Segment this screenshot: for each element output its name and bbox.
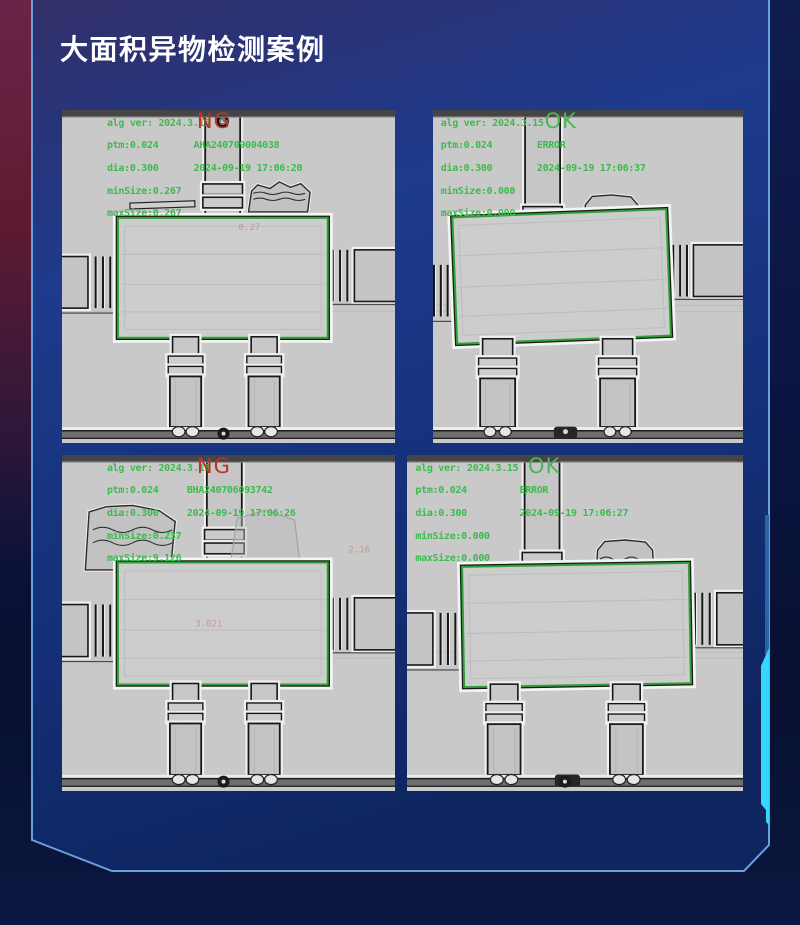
overlay-error: ERROR [520, 485, 549, 496]
overlay-max-size: maxSize:9.126 [107, 553, 181, 564]
overlay-min-size: minSize:0.000 [441, 186, 515, 197]
overlay: alg ver: 2024.3.15 ptm:0.024 dia:0.300 m… [62, 455, 395, 791]
overlay-dia: dia:0.300 [441, 163, 493, 174]
overlay-min-size: minSize:0.237 [107, 531, 181, 542]
overlay-alg-ver: alg ver: 2024.3.15 [415, 463, 518, 474]
status-badge: OK [528, 456, 560, 477]
overlay-ptm: ptm:0.024 [107, 485, 159, 496]
xray-case-top-left: 0.27 alg ver: 2024.3.15 ptm:0.024 dia:0.… [62, 110, 395, 443]
overlay: alg ver: 2024.3.15 ptm:0.024 dia:0.300 m… [433, 110, 743, 443]
overlay-datetime: 2024-09-19 17:06:27 [520, 508, 629, 519]
overlay-max-size: maxSize:0.000 [415, 553, 489, 564]
overlay-alg-ver: alg ver: 2024.3.15 [441, 118, 544, 129]
overlay-datetime: 2024-09-19 17:06:37 [537, 163, 646, 174]
overlay-ptm: ptm:0.024 [415, 485, 467, 496]
right-edge-accent-dim [765, 515, 769, 655]
overlay-max-size: maxSize:0.267 [107, 208, 181, 219]
overlay-serial: AHA240709004038 [194, 140, 280, 151]
xray-case-bottom-left: 3.0212.16 alg ver: 2024.3.15 ptm:0.024 d… [62, 455, 395, 791]
status-badge: OK [545, 111, 577, 132]
overlay-ptm: ptm:0.024 [107, 140, 159, 151]
page-title: 大面积异物检测案例 [60, 28, 326, 68]
overlay-min-size: minSize:0.267 [107, 186, 181, 197]
overlay-ptm: ptm:0.024 [441, 140, 493, 151]
right-edge-accent-cyan [761, 648, 769, 825]
overlay: alg ver: 2024.3.15 ptm:0.024 dia:0.300 m… [62, 110, 395, 443]
overlay-serial: BHA240706093742 [187, 485, 273, 496]
overlay-datetime: 2024-09-19 17:06:26 [187, 508, 296, 519]
status-badge: NG [197, 111, 231, 132]
overlay-dia: dia:0.300 [107, 163, 159, 174]
slide: 大面积异物检测案例 0.27 alg ver: 2024.3.15 ptm:0.… [0, 0, 800, 925]
overlay: alg ver: 2024.3.15 ptm:0.024 dia:0.300 m… [407, 455, 743, 791]
xray-case-top-right: alg ver: 2024.3.15 ptm:0.024 dia:0.300 m… [433, 110, 743, 443]
overlay-dia: dia:0.300 [415, 508, 467, 519]
xray-case-bottom-right: alg ver: 2024.3.15 ptm:0.024 dia:0.300 m… [407, 455, 743, 791]
overlay-dia: dia:0.300 [107, 508, 159, 519]
overlay-alg-ver: alg ver: 2024.3.15 [107, 463, 210, 474]
overlay-alg-ver: alg ver: 2024.3.15 [107, 118, 210, 129]
overlay-datetime: 2024-09-19 17:06:20 [194, 163, 303, 174]
overlay-error: ERROR [537, 140, 566, 151]
overlay-min-size: minSize:0.000 [415, 531, 489, 542]
overlay-max-size: maxSize:0.000 [441, 208, 515, 219]
status-badge: NG [197, 456, 231, 477]
